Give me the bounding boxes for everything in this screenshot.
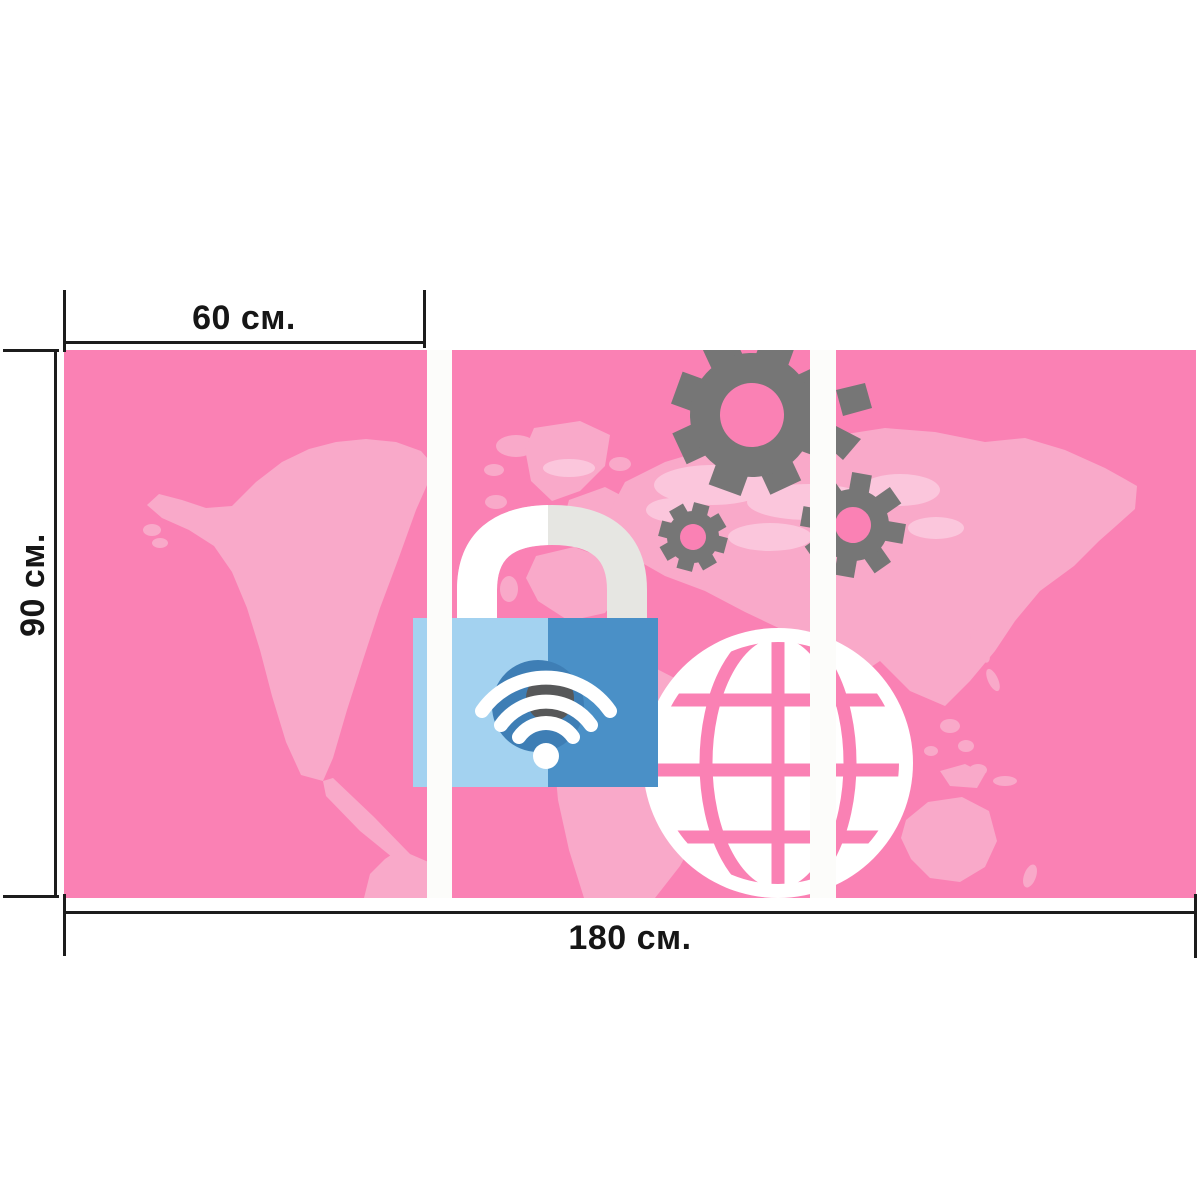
dimension-top-line [64, 341, 426, 344]
globe-icon [643, 628, 913, 898]
dimension-left-tick-bottom [3, 895, 59, 898]
height-label: 90 см. [13, 485, 53, 685]
dimension-bottom-line [64, 911, 1197, 914]
total-width-label: 180 см. [530, 918, 730, 958]
artwork-canvas [64, 350, 1196, 898]
dimension-left-tick-top [3, 349, 59, 352]
dimension-top-tick-right [423, 290, 426, 348]
dimension-left-line [54, 350, 57, 898]
product-mockup: 60 см. 90 см. 180 см. [0, 0, 1200, 1200]
dimension-bottom-tick-left [63, 894, 66, 956]
panel-width-label: 60 см. [144, 298, 344, 338]
panel-gap-right [810, 350, 836, 898]
dimension-bottom-tick-right [1194, 894, 1197, 958]
triptych-artwork [64, 350, 1196, 898]
panel-gap-left [427, 350, 452, 898]
dimension-top-tick-left [63, 290, 66, 352]
